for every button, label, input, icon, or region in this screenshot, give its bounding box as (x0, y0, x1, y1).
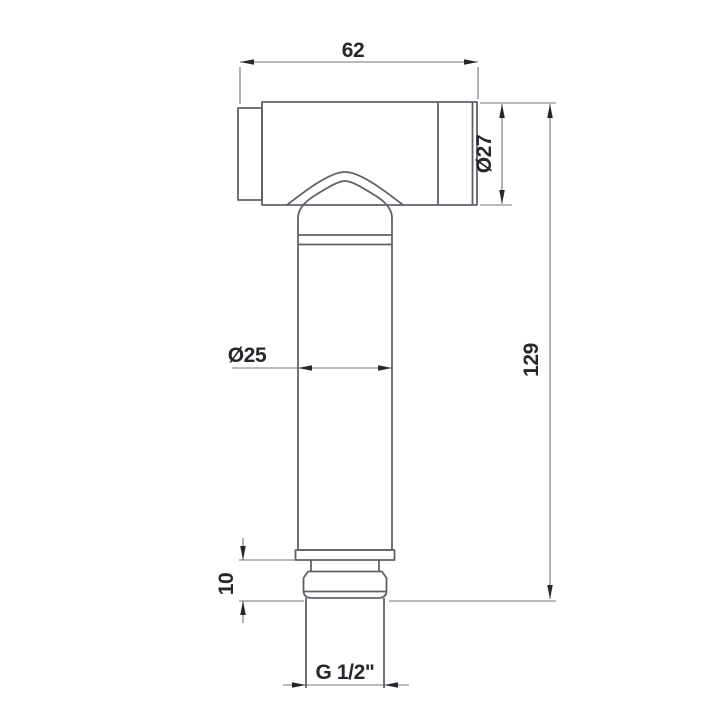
head-rear-cap-outline (238, 108, 262, 200)
dim-label-head-width: 62 (342, 39, 365, 62)
drawing-page: 62 Ø27 Ø25 129 10 G 1/2" (0, 0, 720, 720)
coupling-nut-outline (304, 572, 387, 599)
dim-label-connector-height: 10 (215, 573, 238, 596)
arrow-handle-diameter-left (298, 365, 312, 371)
dimension-lines (232, 62, 556, 685)
shoulder-outer-curve (287, 172, 403, 205)
arrow-head-width-right (464, 59, 478, 65)
dim-label-thread-size: G 1/2" (316, 661, 375, 684)
dim-label-overall-height: 129 (520, 343, 543, 377)
arrow-connector-bottom (240, 601, 246, 615)
head-body-outline (262, 102, 477, 205)
dimension-labels: 62 Ø27 Ø25 129 10 G 1/2" (215, 39, 543, 684)
sprayer-outline (238, 102, 477, 688)
arrow-overall-height-bottom (547, 585, 553, 599)
bottom-flange-outline (296, 550, 395, 560)
arrow-head-diameter-bottom (499, 190, 505, 204)
dimension-arrows (240, 59, 553, 688)
dim-label-head-diameter: Ø27 (473, 135, 496, 174)
arrow-thread-left (292, 682, 306, 688)
arrow-connector-top (240, 546, 246, 560)
arrow-head-width-left (240, 59, 254, 65)
arrow-overall-height-top (547, 104, 553, 118)
dim-label-handle-diameter: Ø25 (228, 344, 267, 367)
technical-drawing-canvas: 62 Ø27 Ø25 129 10 G 1/2" (0, 0, 720, 720)
arrow-thread-right (384, 682, 398, 688)
arrow-handle-diameter-right (378, 365, 392, 371)
arrow-head-diameter-top (499, 104, 505, 118)
